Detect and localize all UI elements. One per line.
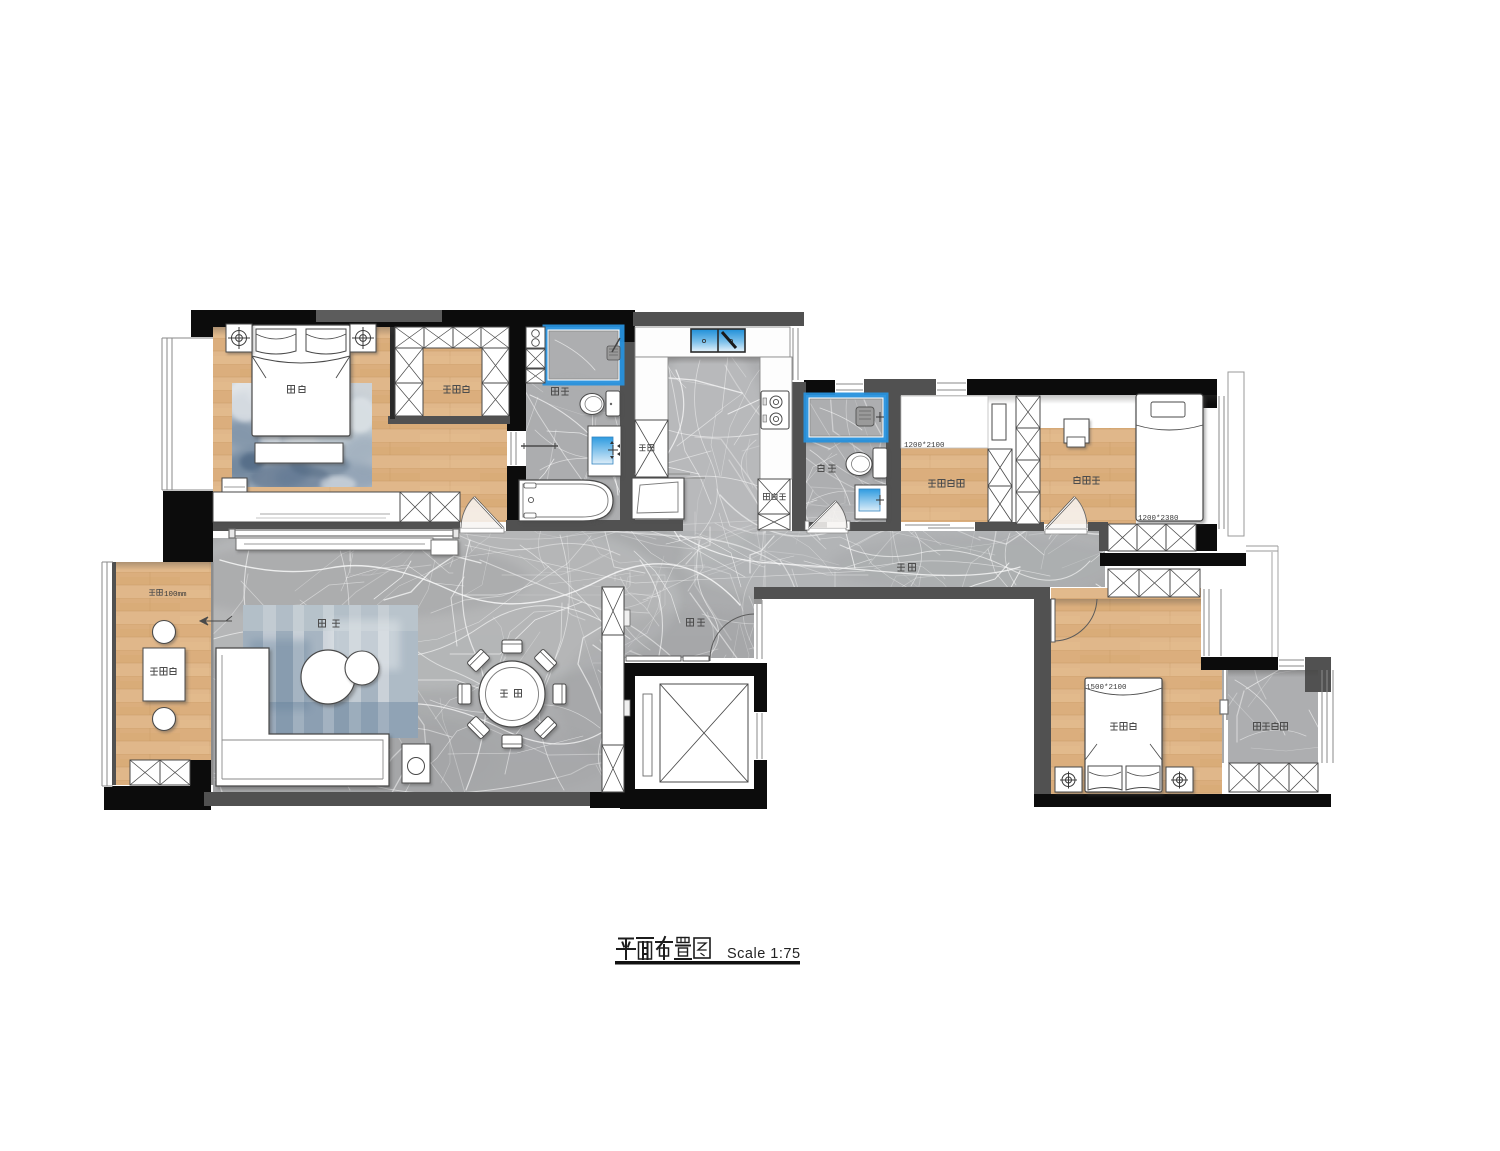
svg-text:1200*2380: 1200*2380 (1138, 515, 1179, 523)
svg-text:100mm: 100mm (164, 591, 187, 599)
svg-text:1500*2100: 1500*2100 (1086, 684, 1127, 692)
svg-text:1200*2100: 1200*2100 (904, 442, 945, 450)
svg-text:Scale 1:75: Scale 1:75 (727, 946, 801, 962)
